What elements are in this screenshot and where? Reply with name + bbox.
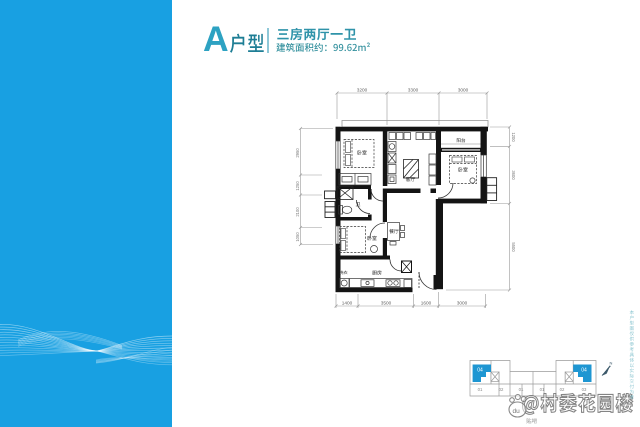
svg-text:04: 04: [477, 368, 483, 374]
svg-text:1200: 1200: [511, 132, 516, 142]
svg-text:03: 03: [582, 387, 587, 392]
svg-text:1400: 1400: [342, 301, 353, 306]
svg-text:3000: 3000: [458, 88, 469, 93]
svg-text:01: 01: [478, 387, 483, 392]
svg-text:1050: 1050: [295, 232, 300, 242]
svg-text:du: du: [513, 408, 521, 415]
svg-text:2950: 2950: [295, 148, 300, 158]
svg-text:02: 02: [560, 387, 565, 392]
svg-text:3300: 3300: [408, 88, 419, 93]
svg-text:1600: 1600: [421, 301, 432, 306]
svg-text:04: 04: [581, 368, 587, 374]
svg-text:3600: 3600: [511, 170, 516, 180]
svg-text:2100: 2100: [295, 207, 300, 217]
svg-text:N: N: [610, 361, 613, 366]
svg-text:5500: 5500: [511, 242, 516, 252]
svg-text:3000: 3000: [457, 301, 468, 306]
svg-text:1250: 1250: [295, 181, 300, 191]
svg-text:3200: 3200: [357, 88, 368, 93]
svg-text:3500: 3500: [381, 301, 392, 306]
svg-text:02: 02: [499, 387, 504, 392]
